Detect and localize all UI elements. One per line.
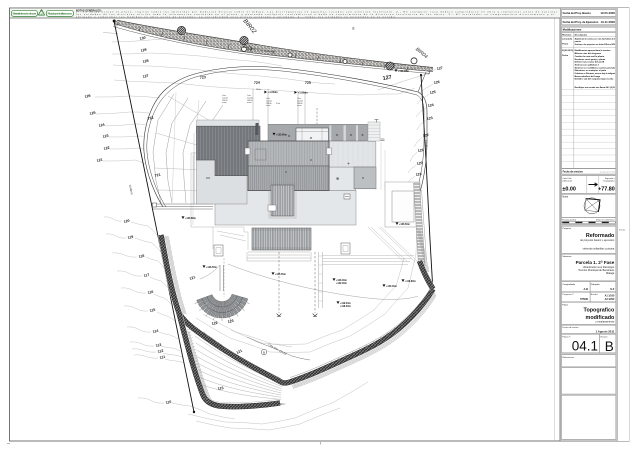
svg-text:Situacion: Situacion [562, 255, 572, 258]
svg-text:+130.88m: +130.88m [185, 217, 196, 220]
svg-text:Rectifique una senala con llam: Rectifique una senala con llama 04.1 (2)… [575, 86, 616, 89]
svg-text:575/06: 575/06 [580, 297, 588, 301]
svg-text:Fecha de sesion: Fecha de sesion [562, 327, 579, 329]
svg-text:Plano: Plano [562, 304, 568, 306]
svg-text:+120.40m: +120.40m [386, 285, 397, 288]
svg-text:Fecha: Fecha [562, 55, 569, 57]
svg-text:A1 1/100: A1 1/100 [605, 295, 615, 298]
svg-text:+133.05m: +133.05m [398, 70, 409, 73]
svg-text:acera: acera [297, 105, 302, 107]
svg-text:+118.40m: +118.40m [340, 305, 351, 308]
svg-text:Escala grafica: Escala grafica [562, 218, 577, 221]
svg-text:Plano nº: Plano nº [562, 335, 570, 338]
svg-text:Banca cabellera del braga: Banca cabellera del braga [575, 76, 601, 78]
svg-text:Cambio la cota azul la planta: Cambio la cota azul la planta [575, 55, 606, 58]
svg-text:Topografico: Topografico [584, 307, 615, 313]
svg-text:10-11-2008: 10-11-2008 [601, 20, 616, 24]
svg-text:19-05-2008: 19-05-2008 [600, 11, 615, 15]
svg-text:Proyecto: Proyecto [562, 227, 571, 230]
svg-text:(a ajustar) s/ind: (a ajustar) s/ind [600, 171, 616, 174]
svg-text:+135.60m: +135.60m [276, 134, 287, 137]
svg-text:Fecha: Fecha [562, 44, 569, 46]
svg-text:+122.40m: +122.40m [336, 282, 347, 285]
svg-text:n.topografico: n.topografico [603, 179, 616, 182]
svg-text:1 Agosto 2011: 1 Agosto 2011 [596, 329, 615, 333]
svg-text:Proyecto nº: Proyecto nº [562, 293, 573, 296]
svg-text:y emplazamiento: y emplazamiento [595, 320, 615, 323]
svg-text:Escaleras como garaje y planta: Escaleras como garaje y planta [575, 58, 607, 61]
svg-text:de proyecto basico y ejecucion: de proyecto basico y ejecucion [580, 239, 615, 242]
svg-text:725: 725 [305, 81, 311, 85]
svg-text:Referencias: Referencias [562, 356, 575, 359]
svg-text:Lindero: Lindero [424, 140, 429, 151]
svg-text:Letra (2-5): Letra (2-5) [562, 38, 572, 41]
svg-text:+1.05dm: +1.05dm [268, 91, 278, 94]
svg-text:+119.80m: +119.80m [405, 280, 416, 283]
svg-text:Parcela 1. 2ª Fase: Parcela 1. 2ª Fase [576, 260, 615, 265]
svg-text:obligado a comprobar las medid: obligado a comprobar las medidas en obra… [76, 15, 396, 18]
svg-text:Definicion en Dibujante; mostr: Definicion en Dibujante; mostrar bajo la… [575, 72, 616, 75]
svg-text:+130.60m: +130.60m [399, 223, 410, 226]
svg-text:Recicla por el utilizar como: Recicla por el utilizar como [48, 12, 73, 16]
svg-text:+126.50m: +126.50m [206, 266, 217, 269]
svg-text:36.8m: 36.8m [256, 89, 261, 91]
svg-text:acera: acera [247, 102, 252, 104]
svg-text:S.F: S.F [610, 287, 614, 291]
svg-text:724: 724 [254, 81, 260, 85]
svg-text:+1.05dm: +1.05dm [298, 91, 308, 94]
svg-text:acera: acera [222, 102, 227, 104]
svg-text:B (01.08.11): B (01.08.11) [562, 50, 573, 52]
svg-text:Malaga: Malaga [606, 272, 615, 275]
svg-text:Descripcion: Descripcion [575, 34, 588, 36]
svg-text:edificacion: edificacion [562, 180, 573, 182]
svg-text:Fecha del Proy. Basico: Fecha del Proy. Basico [563, 11, 592, 15]
svg-text:723: 723 [200, 75, 206, 80]
svg-text:04.1: 04.1 [572, 339, 598, 354]
svg-text:Sistema con spilladora 1: Sistema con spilladora 1 [575, 63, 600, 66]
svg-text:Definir mas trazas del perfil: Definir mas trazas del perfil [575, 61, 605, 64]
svg-text:±0.00: ±0.00 [562, 186, 575, 192]
svg-text:Escala:: Escala: [591, 294, 599, 296]
svg-text:Fecha del Proy. de Ejecucion: Fecha del Proy. de Ejecucion [563, 20, 599, 24]
svg-text:3.5m: 3.5m [276, 103, 280, 105]
svg-text:Norte: Norte [562, 196, 569, 199]
svg-text:Modificacion aprovechara la co: Modificacion aprovechara la cornisa [575, 50, 612, 52]
svg-text:puerta: puerta [575, 40, 582, 43]
svg-text:Sistema su escalillara y cuart: Sistema su escalillara y cuartos privado [575, 66, 616, 69]
svg-text:Sustituye a los proyectos con: Sustituye a los proyectos con fecha 09 E… [575, 43, 616, 46]
svg-text:Revision: Revision [562, 34, 572, 36]
svg-text:A.B: A.B [584, 287, 589, 291]
svg-text:+77.80: +77.80 [598, 186, 615, 192]
svg-text:Fecha de revision: Fecha de revision [563, 171, 584, 174]
svg-text:Modificaciones: Modificaciones [563, 27, 582, 31]
svg-text:1.- La cotas acotan el plano,: 1.- La cotas acotan el plano, regiran so… [76, 10, 557, 13]
svg-text:vivienda unifamiliar y piscina: vivienda unifamiliar y piscina [583, 247, 615, 250]
svg-text:Detalles vial del maquina baja: Detalles vial del maquina baja escrito [575, 78, 615, 81]
svg-text:Manciones en cualquier el pati: Manciones en cualquier el patio [575, 69, 607, 72]
svg-text:Fondo: Fondo [619, 229, 626, 231]
svg-text:+125.50m: +125.50m [275, 273, 286, 276]
svg-text:Dibujado: Dibujado [591, 284, 600, 286]
svg-text:Material desecho de usar: Material desecho de usar [13, 12, 37, 16]
svg-text:B: B [605, 339, 614, 354]
svg-text:Ampliacion la comisa con vias: Ampliacion la comisa con vias fija habit… [575, 37, 616, 40]
svg-text:Bifurcar vias del desguace: Bifurcar vias del desguace [575, 53, 602, 55]
svg-text:acera: acera [266, 105, 271, 107]
svg-text:Datos en centimetros: Datos en centimetros [596, 218, 615, 221]
svg-text:A3 1/200: A3 1/200 [605, 298, 615, 301]
svg-text:Comprobado: Comprobado [562, 283, 575, 286]
svg-text:B: B [263, 350, 265, 354]
